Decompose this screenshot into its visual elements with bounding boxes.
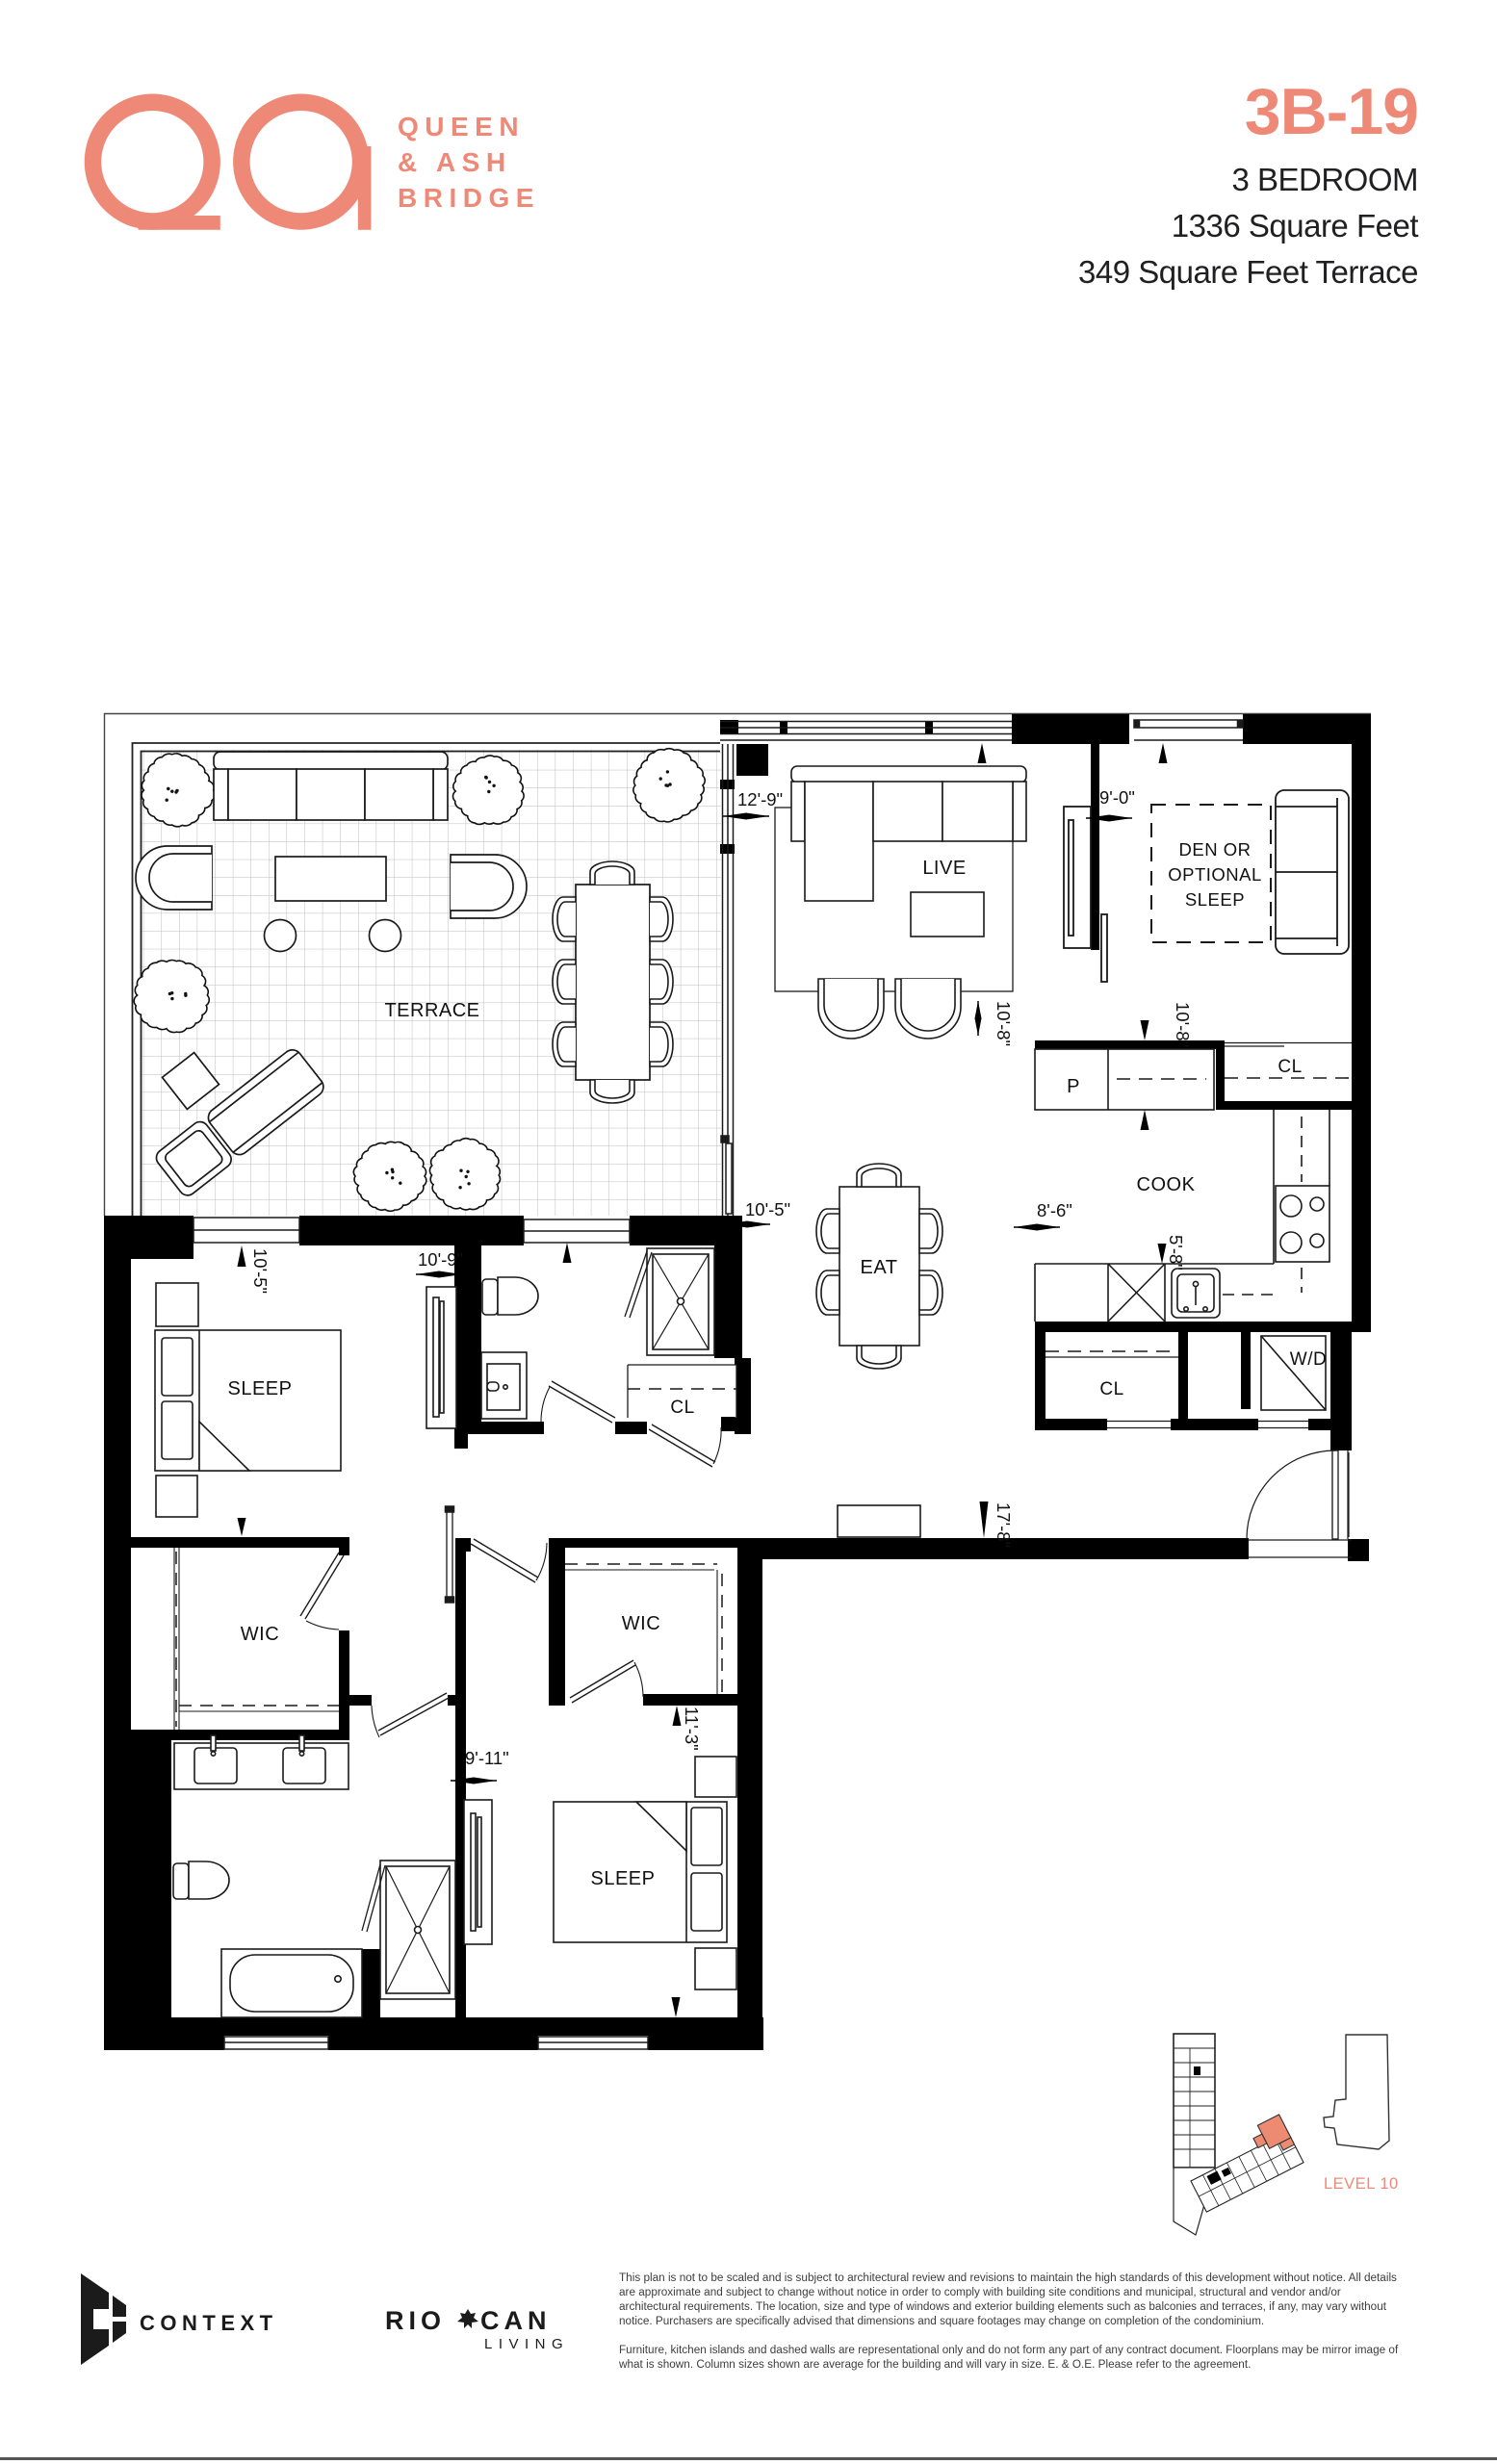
svg-text:LIVING: LIVING [484,2336,569,2352]
svg-text:CL: CL [1099,1379,1123,1399]
svg-text:10'-5": 10'-5" [745,1199,790,1219]
svg-text:10'-8": 10'-8" [1173,1002,1193,1047]
svg-text:W/D: W/D [1290,1349,1327,1370]
svg-text:CL: CL [670,1398,694,1418]
svg-text:OPTIONAL: OPTIONAL [1168,864,1262,885]
svg-text:5'-8": 5'-8" [1166,1235,1186,1270]
svg-text:WIC: WIC [241,1624,279,1645]
svg-text:TERRACE: TERRACE [384,1000,479,1021]
svg-text:P: P [1067,1076,1080,1097]
svg-text:SLEEP: SLEEP [228,1378,293,1399]
svg-text:9'-11": 9'-11" [465,1748,509,1768]
svg-text:12'-9": 12'-9" [737,789,783,809]
svg-text:10'-8": 10'-8" [994,1001,1014,1046]
svg-text:10'-5": 10'-5" [250,1248,271,1294]
svg-text:17'-8": 17'-8" [994,1502,1014,1548]
svg-text:LEVEL 10: LEVEL 10 [1324,2175,1399,2193]
svg-text:WIC: WIC [622,1613,660,1634]
svg-text:9'-0": 9'-0" [1099,787,1135,808]
svg-text:CL: CL [1278,1057,1302,1077]
svg-text:RIO: RIO [385,2306,446,2335]
svg-text:EAT: EAT [861,1257,898,1278]
svg-text:CAN: CAN [480,2306,552,2335]
svg-text:CONTEXT: CONTEXT [140,2311,278,2335]
svg-text:DEN OR: DEN OR [1179,839,1252,860]
svg-text:11'-3": 11'-3" [682,1707,702,1751]
svg-text:LIVE: LIVE [922,858,966,879]
svg-text:COOK: COOK [1137,1174,1196,1195]
svg-text:8'-6": 8'-6" [1037,1200,1072,1220]
svg-text:SLEEP: SLEEP [591,1868,656,1889]
svg-text:10'-9": 10'-9" [418,1249,463,1270]
svg-text:SLEEP: SLEEP [1185,889,1245,910]
